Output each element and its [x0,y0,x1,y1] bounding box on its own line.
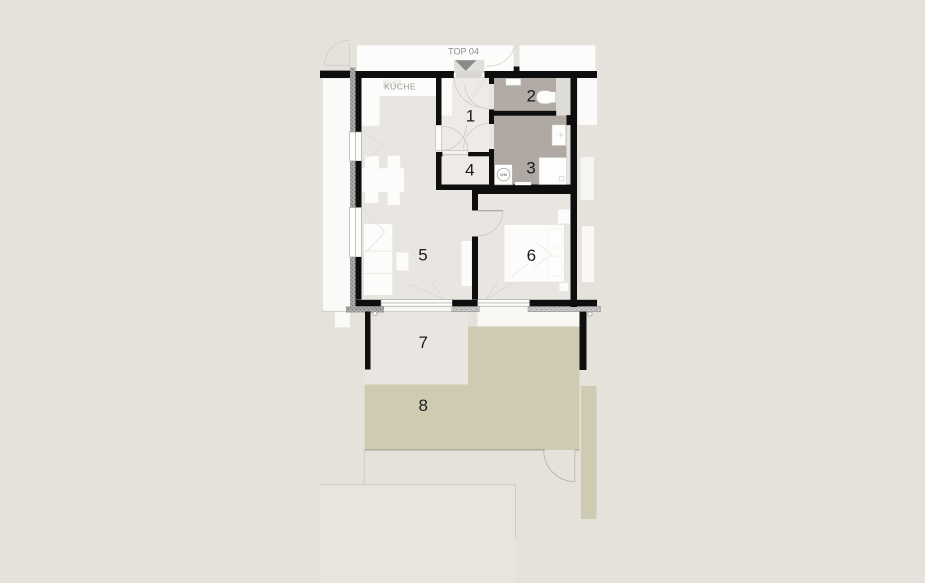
svg-text:1: 1 [466,106,475,125]
svg-text:WM: WM [500,172,507,177]
svg-text:TOP 04: TOP 04 [448,46,479,56]
svg-text:KÜCHE: KÜCHE [384,82,416,92]
svg-text:8: 8 [418,396,427,415]
svg-text:2: 2 [526,86,535,105]
svg-text:5: 5 [418,246,427,265]
svg-text:7: 7 [418,333,427,352]
svg-text:3: 3 [526,159,535,178]
svg-text:4: 4 [465,161,474,180]
svg-text:6: 6 [527,246,536,265]
